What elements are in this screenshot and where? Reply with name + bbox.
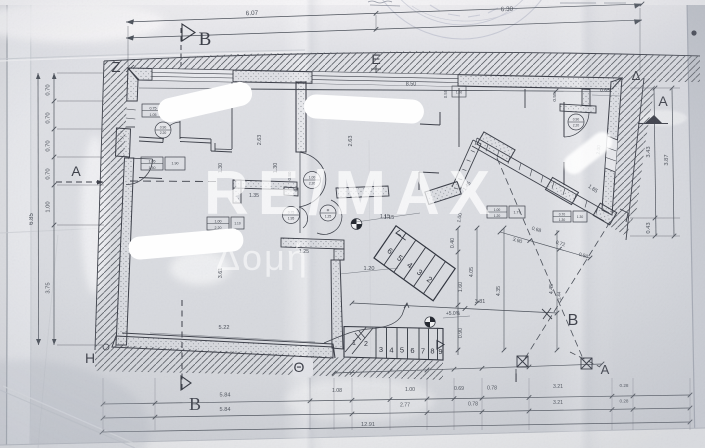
svg-text:RE/MAX: RE/MAX (204, 159, 499, 228)
